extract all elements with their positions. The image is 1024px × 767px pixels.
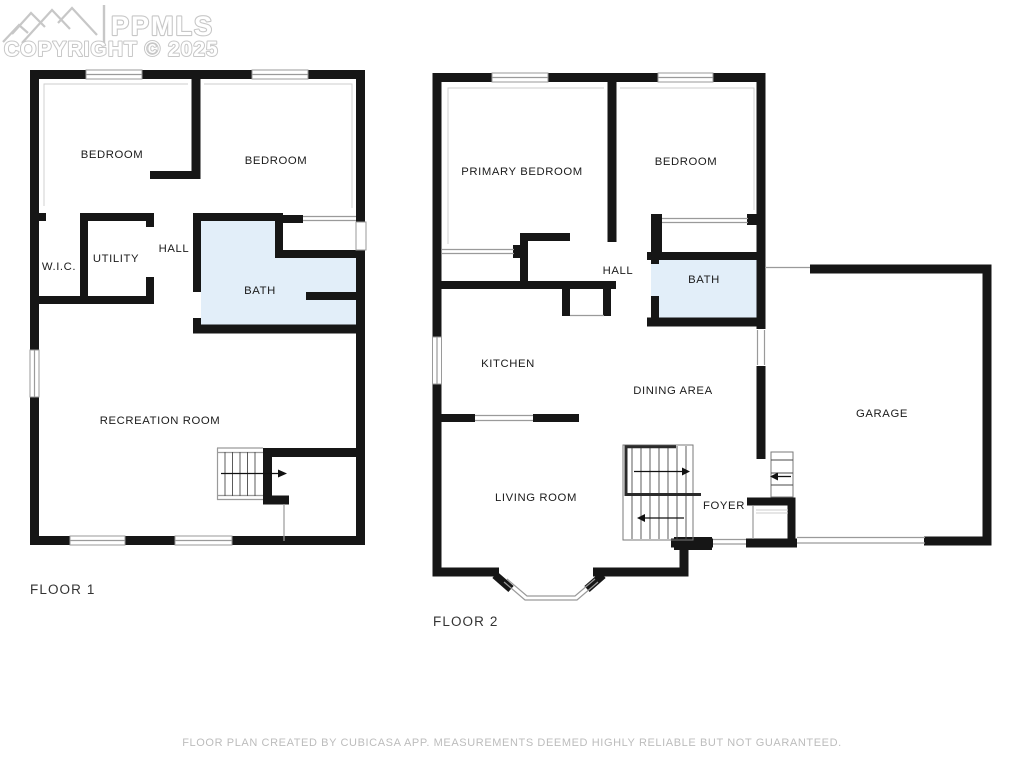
front-door-opening <box>713 540 746 545</box>
copyright-text: COPYRIGHT © 2025 <box>4 38 219 61</box>
room-label-dining-area: DINING AREA <box>633 385 712 397</box>
room-label-wic: W.I.C. <box>42 261 76 273</box>
floor2-labels: PRIMARY BEDROOM BEDROOM HALL BATH KITCHE… <box>433 156 908 629</box>
garage-steps <box>770 452 793 497</box>
window <box>86 70 142 79</box>
stair-direction-arrow <box>770 473 791 481</box>
garage-walls <box>765 265 992 546</box>
window <box>252 70 308 79</box>
floor2-bedroom-hairline <box>620 88 754 210</box>
footer-disclaimer: FLOOR PLAN CREATED BY CUBICASA APP. MEAS… <box>182 737 842 749</box>
window <box>492 73 548 82</box>
floor1-bedroom1-hairline <box>44 84 188 206</box>
watermark: PPMLS COPYRIGHT © 2025 <box>3 5 219 61</box>
room-label-recreation-room: RECREATION ROOM <box>100 415 221 427</box>
floor1-title: FLOOR 1 <box>30 582 95 597</box>
room-label-kitchen: KITCHEN <box>481 358 535 370</box>
floor-plan-canvas: PPMLS COPYRIGHT © 2025 <box>0 0 1024 767</box>
staircase <box>623 445 701 540</box>
staircase <box>217 448 287 541</box>
floor2-plan <box>433 73 992 600</box>
floor1-plan <box>30 70 366 545</box>
floor1-closet-front <box>303 217 356 221</box>
room-label-hall: HALL <box>603 265 634 277</box>
window <box>658 73 713 82</box>
floor2-title: FLOOR 2 <box>433 614 498 629</box>
wall-opening <box>356 222 366 250</box>
room-label-bedroom: BEDROOM <box>245 155 308 167</box>
room-label-bath: BATH <box>688 274 720 286</box>
room-label-living-room: LIVING ROOM <box>495 492 577 504</box>
door-opening <box>758 330 765 365</box>
floor2-bath-floor <box>651 256 761 322</box>
stair-rail <box>626 447 701 495</box>
floor-plan-page: PPMLS COPYRIGHT © 2025 <box>0 0 1024 767</box>
room-label-bedroom: BEDROOM <box>655 156 718 168</box>
window <box>433 337 442 384</box>
floor2-windows <box>433 73 714 384</box>
room-label-hall: HALL <box>159 243 190 255</box>
room-label-bedroom: BEDROOM <box>81 149 144 161</box>
window <box>70 536 125 545</box>
window <box>30 350 39 397</box>
room-label-utility: UTILITY <box>93 253 139 265</box>
brand-text: PPMLS <box>111 11 214 41</box>
bay-window <box>504 579 598 600</box>
room-label-primary-bedroom: PRIMARY BEDROOM <box>461 166 583 178</box>
window <box>175 536 232 545</box>
room-label-foyer: FOYER <box>703 500 745 512</box>
stair-direction-arrow <box>221 470 287 478</box>
floor1-bedroom2-hairline <box>204 84 352 208</box>
room-label-bath: BATH <box>244 285 276 297</box>
garage-door-opening <box>797 538 925 544</box>
room-label-garage: GARAGE <box>856 408 908 420</box>
stair-direction-arrow <box>634 468 690 476</box>
